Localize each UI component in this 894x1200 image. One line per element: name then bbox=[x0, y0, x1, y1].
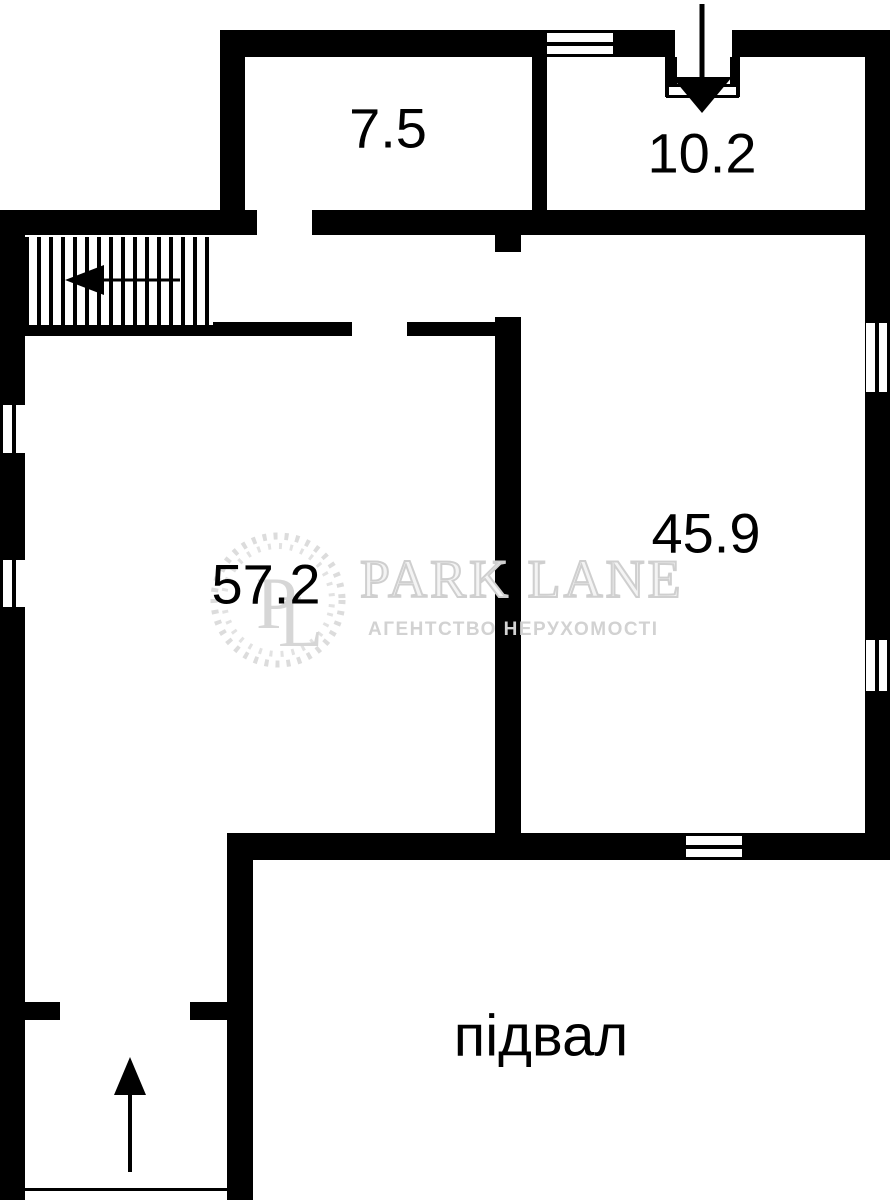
window-symbol bbox=[866, 323, 887, 392]
door-jamb bbox=[190, 1002, 227, 1020]
step-line bbox=[25, 1188, 227, 1191]
wall bbox=[227, 833, 890, 860]
room-label-basement: підвал bbox=[454, 1003, 628, 1070]
door-jamb bbox=[25, 1002, 60, 1020]
window-mullion bbox=[875, 323, 879, 392]
watermark: P L PARK LANE АГЕНТСТВО НЕРУХОМОСТІ bbox=[0, 0, 894, 1200]
window-mullion bbox=[686, 845, 742, 849]
wall bbox=[220, 30, 245, 235]
entrance-threshold bbox=[666, 84, 739, 98]
staircase-symbol bbox=[25, 237, 213, 325]
window-mullion bbox=[12, 560, 16, 607]
window-mullion bbox=[875, 640, 879, 691]
direction-arrows bbox=[0, 0, 894, 1200]
wall bbox=[312, 210, 890, 235]
wall bbox=[220, 30, 533, 57]
window-symbol bbox=[866, 640, 887, 691]
window-symbol bbox=[547, 33, 613, 54]
wall bbox=[495, 235, 521, 252]
window-mullion bbox=[12, 405, 16, 453]
watermark-brand: PARK LANE bbox=[360, 552, 684, 606]
window-mullion bbox=[547, 42, 613, 46]
wall bbox=[495, 317, 521, 860]
room-area-label-57-2: 57.2 bbox=[212, 552, 321, 617]
wall bbox=[532, 57, 547, 210]
floor-plan: P L PARK LANE АГЕНТСТВО НЕРУХОМОСТІ 7.5 … bbox=[0, 0, 894, 1200]
window-symbol bbox=[3, 405, 25, 453]
wall bbox=[0, 210, 257, 235]
wall bbox=[227, 833, 253, 1200]
room-area-label-10-2: 10.2 bbox=[648, 121, 757, 186]
wall bbox=[407, 322, 495, 336]
room-area-label-45-9: 45.9 bbox=[652, 501, 761, 566]
basement-stairs-arrow-icon bbox=[114, 1057, 146, 1172]
window-symbol bbox=[686, 836, 742, 857]
wall bbox=[865, 30, 890, 860]
room-area-label-7-5: 7.5 bbox=[349, 96, 427, 161]
wall bbox=[0, 235, 25, 1200]
window-symbol bbox=[3, 560, 25, 607]
